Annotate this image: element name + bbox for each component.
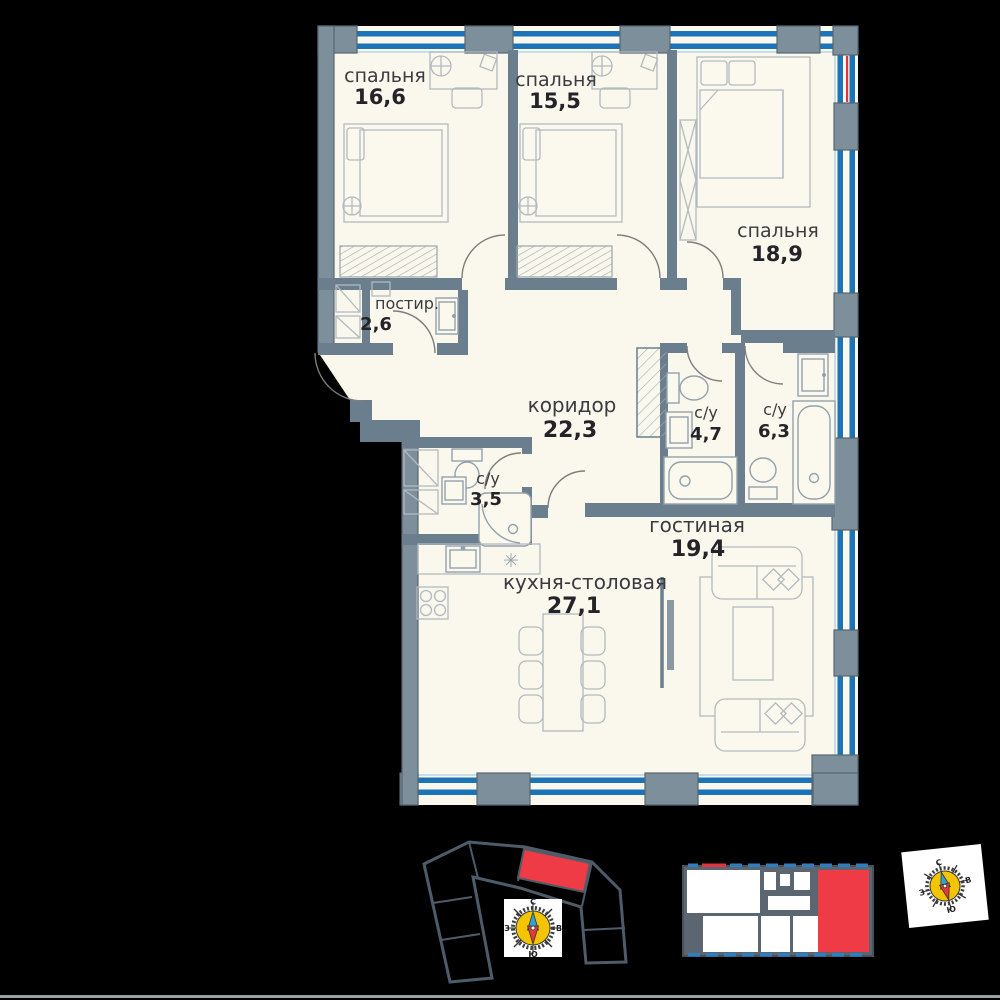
- living-label: гостиная: [649, 513, 745, 537]
- burner-symbol: ✳: [503, 550, 519, 572]
- bath2-label: с/у: [763, 400, 787, 419]
- corridor-area: 22,3: [543, 418, 597, 443]
- compass-icon-tilted: С Ю З В: [901, 844, 989, 928]
- bedroom3-label: спальня: [737, 220, 819, 242]
- bath3-area: 3,5: [470, 489, 502, 510]
- tv-screen: [667, 600, 674, 670]
- apartment-floor-plan: ✳: [0, 0, 1000, 1000]
- laundry-label: постир.: [375, 294, 439, 313]
- living-area: 19,4: [671, 537, 725, 562]
- compass-north: С: [530, 898, 536, 907]
- coffee-table: [733, 607, 773, 680]
- red-measure-mark: [846, 56, 848, 102]
- bath1-label: с/у: [694, 403, 718, 422]
- highlighted-unit: [818, 870, 869, 952]
- screenshot-canvas: ✳: [0, 0, 1000, 1000]
- bedroom2-label: спальня: [515, 69, 597, 91]
- bedroom3-area: 18,9: [751, 242, 803, 266]
- corridor-label: коридор: [528, 393, 617, 417]
- kitchen-label: кухня-столовая: [503, 570, 667, 594]
- bath3-label: с/у: [476, 469, 500, 488]
- ventilation-shaft: [637, 348, 667, 437]
- bedroom1-label: спальня: [344, 65, 426, 87]
- compass-east: В: [556, 924, 562, 933]
- wardrobe: [340, 246, 437, 277]
- bath1-area: 4,7: [690, 424, 722, 445]
- bedroom2-area: 15,5: [529, 89, 581, 113]
- bath2-area: 6,3: [758, 421, 790, 442]
- compass-south: Ю: [528, 950, 537, 959]
- schematic-red-window: [702, 864, 726, 868]
- bedroom1-area: 16,6: [354, 85, 406, 109]
- floor-position-diagram: [683, 864, 873, 957]
- compass-west: З: [504, 924, 510, 933]
- bottom-border-line: [0, 995, 1000, 998]
- compass-icon: С Ю З В: [504, 898, 562, 960]
- wardrobe: [517, 246, 612, 277]
- kitchen-area: 27,1: [547, 594, 601, 619]
- laundry-area: 2,6: [360, 314, 392, 335]
